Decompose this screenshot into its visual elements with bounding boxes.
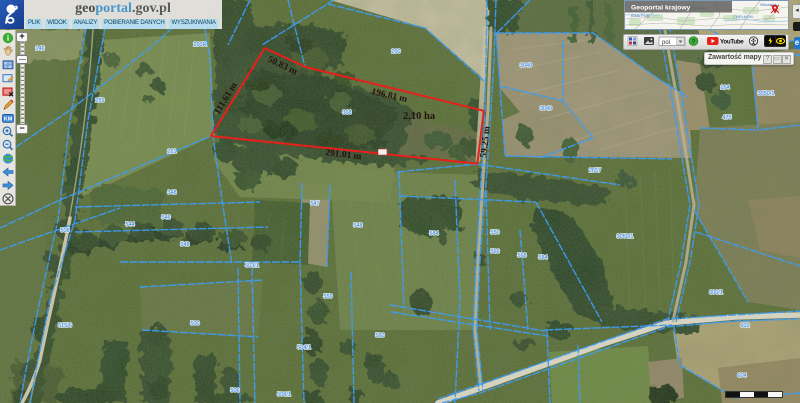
svg-text:Geoportal krajowy: Geoportal krajowy [631,5,691,12]
svg-text:164: 164 [720,85,729,91]
svg-text:550: 550 [490,230,499,236]
svg-text:3050/1: 3050/1 [758,91,775,97]
svg-text:3049: 3049 [540,106,552,112]
svg-text:548: 548 [180,242,189,248]
svg-text:348: 348 [167,190,176,196]
svg-text:YouTube: YouTube [720,39,744,46]
svg-text:146: 146 [35,46,44,52]
svg-text:547: 547 [310,201,319,207]
svg-text:475: 475 [722,115,731,121]
svg-text:602: 602 [740,323,749,329]
svg-text:259: 259 [95,98,104,104]
svg-text:260: 260 [391,49,400,55]
svg-text:Biała Podl.: Biała Podl. [631,13,650,18]
svg-text:600/1: 600/1 [709,290,723,296]
svg-text:544: 544 [125,222,134,228]
svg-text:2657: 2657 [589,168,601,174]
svg-text:504/1: 504/1 [297,345,311,351]
svg-text:604: 604 [737,373,746,379]
svg-text:566: 566 [490,249,499,255]
svg-text:500: 500 [190,321,199,327]
svg-text:pol: pol [662,40,670,46]
svg-text:260R: 260R [193,42,206,48]
svg-text:KM: KM [4,117,13,123]
svg-text:515/6: 515/6 [58,323,72,329]
svg-text:368: 368 [342,110,351,116]
svg-text:3050/1: 3050/1 [617,234,634,240]
svg-text:560: 560 [375,333,384,339]
svg-text:584: 584 [538,255,547,261]
svg-text:584: 584 [429,231,438,237]
svg-text:2,10 ha: 2,10 ha [403,111,436,122]
svg-text:3049: 3049 [520,63,532,69]
svg-text:CHEŁMSKI: CHEŁMSKI [733,14,753,19]
svg-text:261: 261 [167,149,176,155]
svg-text:508: 508 [60,228,69,234]
svg-text:546: 546 [161,215,170,221]
svg-text:?: ? [692,39,696,46]
svg-text:559: 559 [323,294,332,300]
svg-text:568: 568 [517,253,526,259]
svg-text:506: 506 [230,388,239,394]
svg-text:503/1: 503/1 [245,263,259,269]
svg-text:548: 548 [353,223,362,229]
svg-text:508/1: 508/1 [277,392,291,398]
